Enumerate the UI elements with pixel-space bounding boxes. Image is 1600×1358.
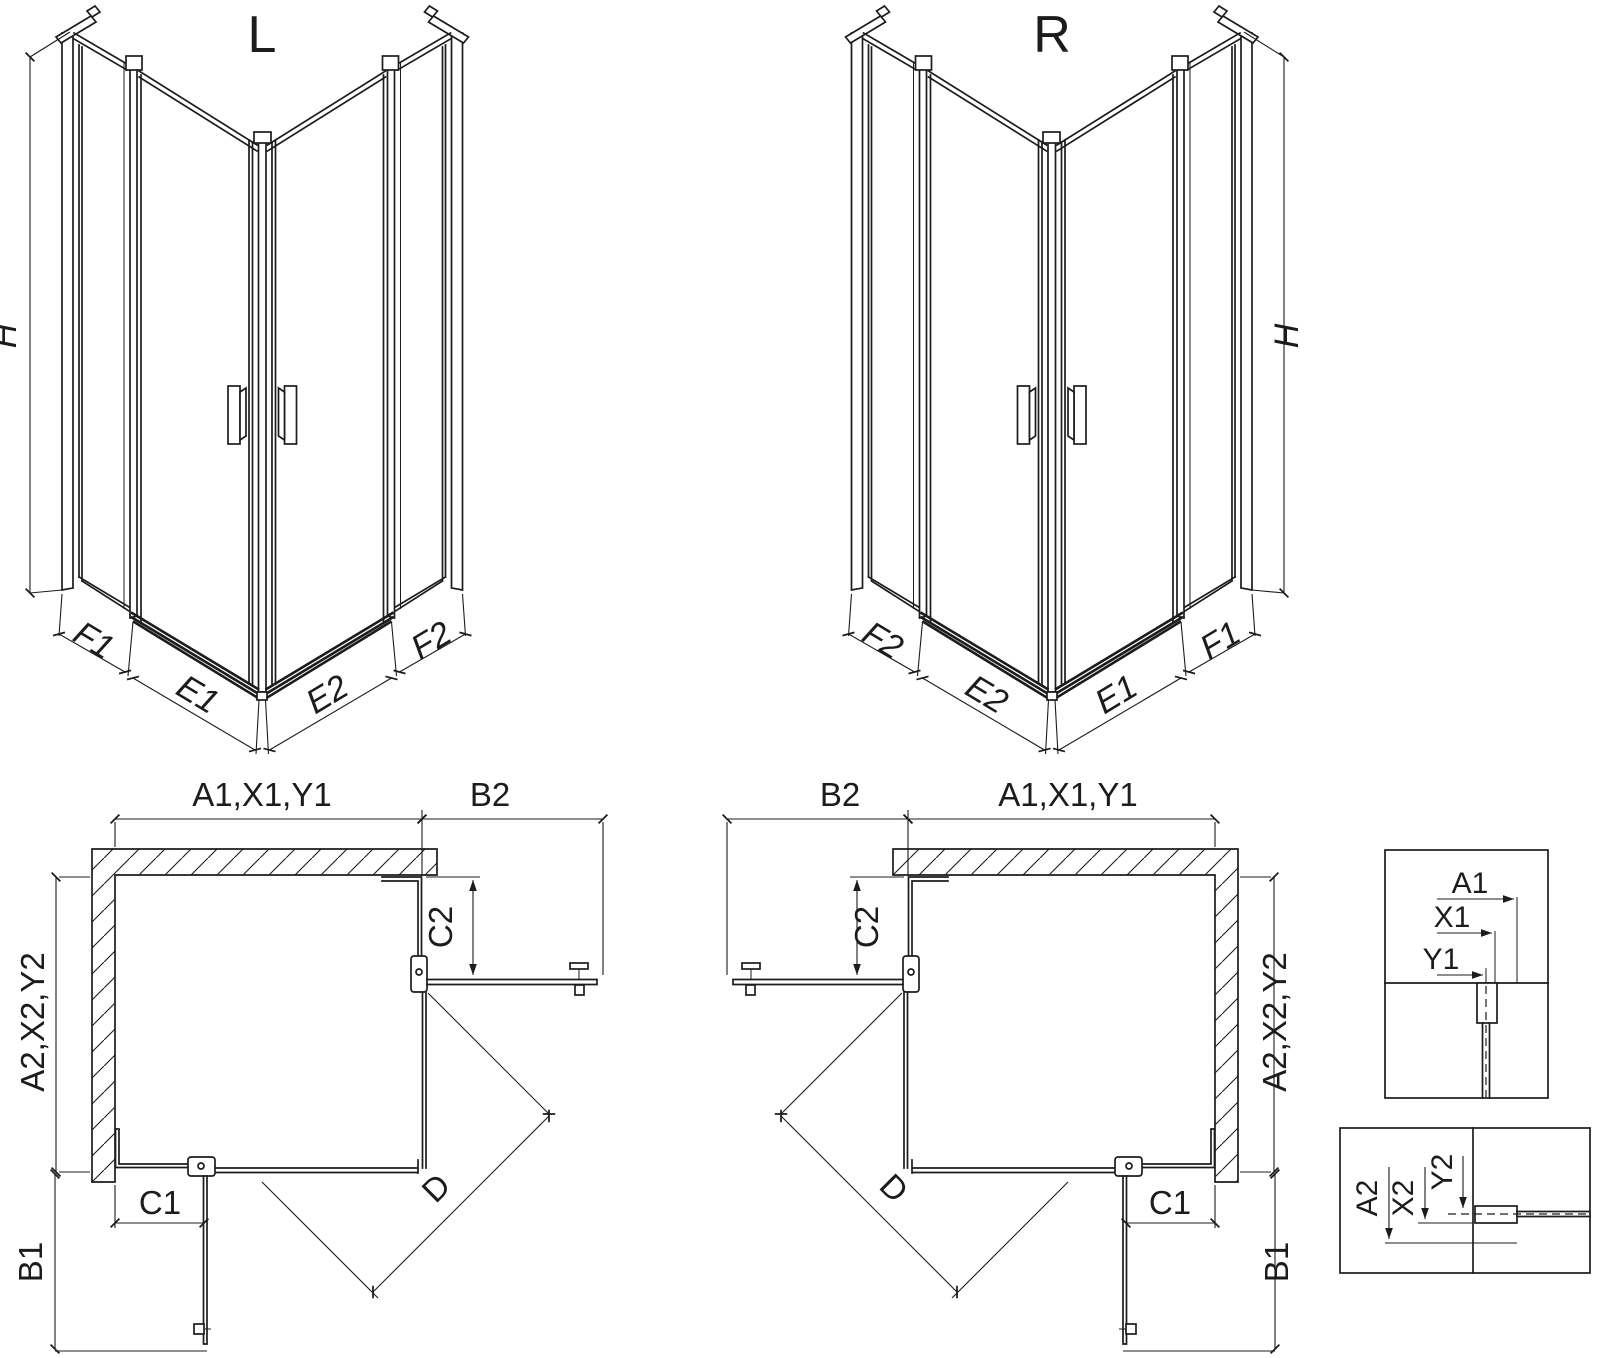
dim-label-c2-planL: C2 [422, 906, 459, 948]
dim-label-b2-planR: B2 [820, 776, 860, 813]
dim-label-a2x2y2-planR: A2,X2,Y2 [1256, 952, 1293, 1091]
dim-label-y1-detail: Y1 [1423, 943, 1460, 976]
dim-label-c2-planR: C2 [848, 906, 885, 948]
dim-label-c1-planL: C1 [139, 1184, 181, 1221]
dim-label-f2-left: F2 [405, 614, 459, 667]
dim-label-x1-detail: X1 [1434, 901, 1471, 934]
variant-label-left: L [248, 6, 277, 64]
dim-label-e2-left: E2 [300, 668, 355, 722]
plan-view-right: B2 A1,X1,Y1 C2 A2,X2,Y2 C1 B1 D [727, 776, 1295, 1351]
dim-label-d-planL: D [414, 1166, 457, 1209]
shower-enclosure-drawing: L H F1 E1 E2 F2 R H F2 E2 E1 F1 A1,X1,Y1… [0, 0, 1600, 1358]
dim-label-c1-planR: C1 [1149, 1184, 1191, 1221]
iso-view-left: L H F1 E1 E2 F2 [0, 6, 469, 754]
dim-label-a1-detail: A1 [1452, 867, 1489, 900]
dim-label-d-planR: D [873, 1166, 916, 1209]
dim-label-e1-right: E1 [1089, 668, 1144, 722]
dim-label-a1x1y1-planL: A1,X1,Y1 [192, 776, 331, 813]
dim-label-y2-detail: Y2 [1426, 1154, 1459, 1191]
dim-label-b2-planL: B2 [470, 776, 510, 813]
dim-label-h-left: H [0, 323, 24, 348]
detail-view-bottom: A2 X2 Y2 [1340, 1128, 1590, 1273]
dim-label-f1-right: F1 [1194, 614, 1248, 667]
glass-profile-section [1477, 983, 1497, 1023]
iso-view-right: R H F2 E2 E1 F1 [846, 6, 1307, 754]
dim-label-e1-left: E1 [170, 668, 225, 722]
dim-label-h-right: H [1268, 323, 1306, 348]
detail-view-top: A1 X1 Y1 [1385, 850, 1548, 1098]
dim-label-f2-right: F2 [856, 614, 910, 667]
dim-label-a2x2y2-planL: A2,X2,Y2 [14, 952, 51, 1091]
wall-hatch-left-plan [92, 849, 437, 1182]
dim-label-e2-right: E2 [959, 668, 1014, 722]
dim-label-b1-planR: B1 [1258, 1242, 1295, 1282]
dim-label-a2-detail: A2 [1351, 1180, 1384, 1217]
dim-label-x2-detail: X2 [1387, 1180, 1420, 1217]
wall-hatch-right-plan [893, 849, 1238, 1182]
technical-drawing-page: L H F1 E1 E2 F2 R H F2 E2 E1 F1 A1,X1,Y1… [0, 0, 1600, 1358]
dim-label-f1-left: F1 [67, 614, 121, 667]
variant-label-right: R [1033, 6, 1071, 64]
dim-label-a1x1y1-planR: A1,X1,Y1 [998, 776, 1137, 813]
dim-label-b1-planL: B1 [12, 1242, 49, 1282]
plan-view-left: A1,X1,Y1 B2 C2 A2,X2,Y2 C1 B1 D [12, 776, 603, 1351]
